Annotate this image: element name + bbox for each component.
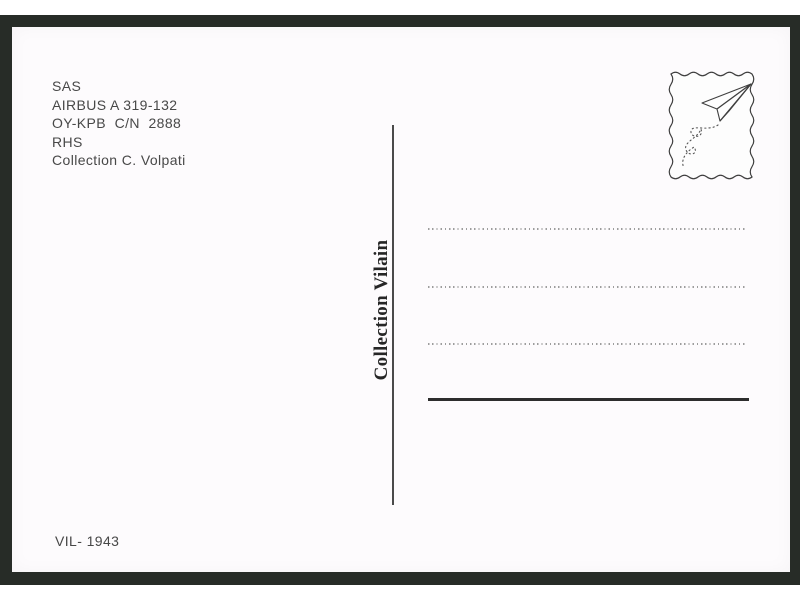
- caption-line-registration: OY-KPB C/N 2888: [52, 114, 186, 133]
- postage-stamp-frame-icon: [665, 68, 758, 183]
- address-line: [428, 228, 747, 230]
- postcard-scan: SAS AIRBUS A 319-132 OY-KPB C/N 2888 RHS…: [0, 0, 800, 600]
- catalog-number: VIL- 1943: [55, 533, 119, 549]
- address-line: [428, 343, 747, 345]
- caption-line-airline: SAS: [52, 77, 186, 96]
- photo-border: SAS AIRBUS A 319-132 OY-KPB C/N 2888 RHS…: [0, 15, 800, 585]
- signature-line: [428, 398, 749, 401]
- caption-line-rhs: RHS: [52, 133, 186, 152]
- publisher-name: Collection Vilain: [370, 200, 394, 420]
- address-line: [428, 286, 747, 288]
- caption-line-aircraft: AIRBUS A 319-132: [52, 96, 186, 115]
- postcard-back: SAS AIRBUS A 319-132 OY-KPB C/N 2888 RHS…: [12, 27, 790, 572]
- stamp-box: [665, 68, 758, 183]
- caption-line-collection: Collection C. Volpati: [52, 151, 186, 170]
- photo-caption: SAS AIRBUS A 319-132 OY-KPB C/N 2888 RHS…: [52, 77, 186, 170]
